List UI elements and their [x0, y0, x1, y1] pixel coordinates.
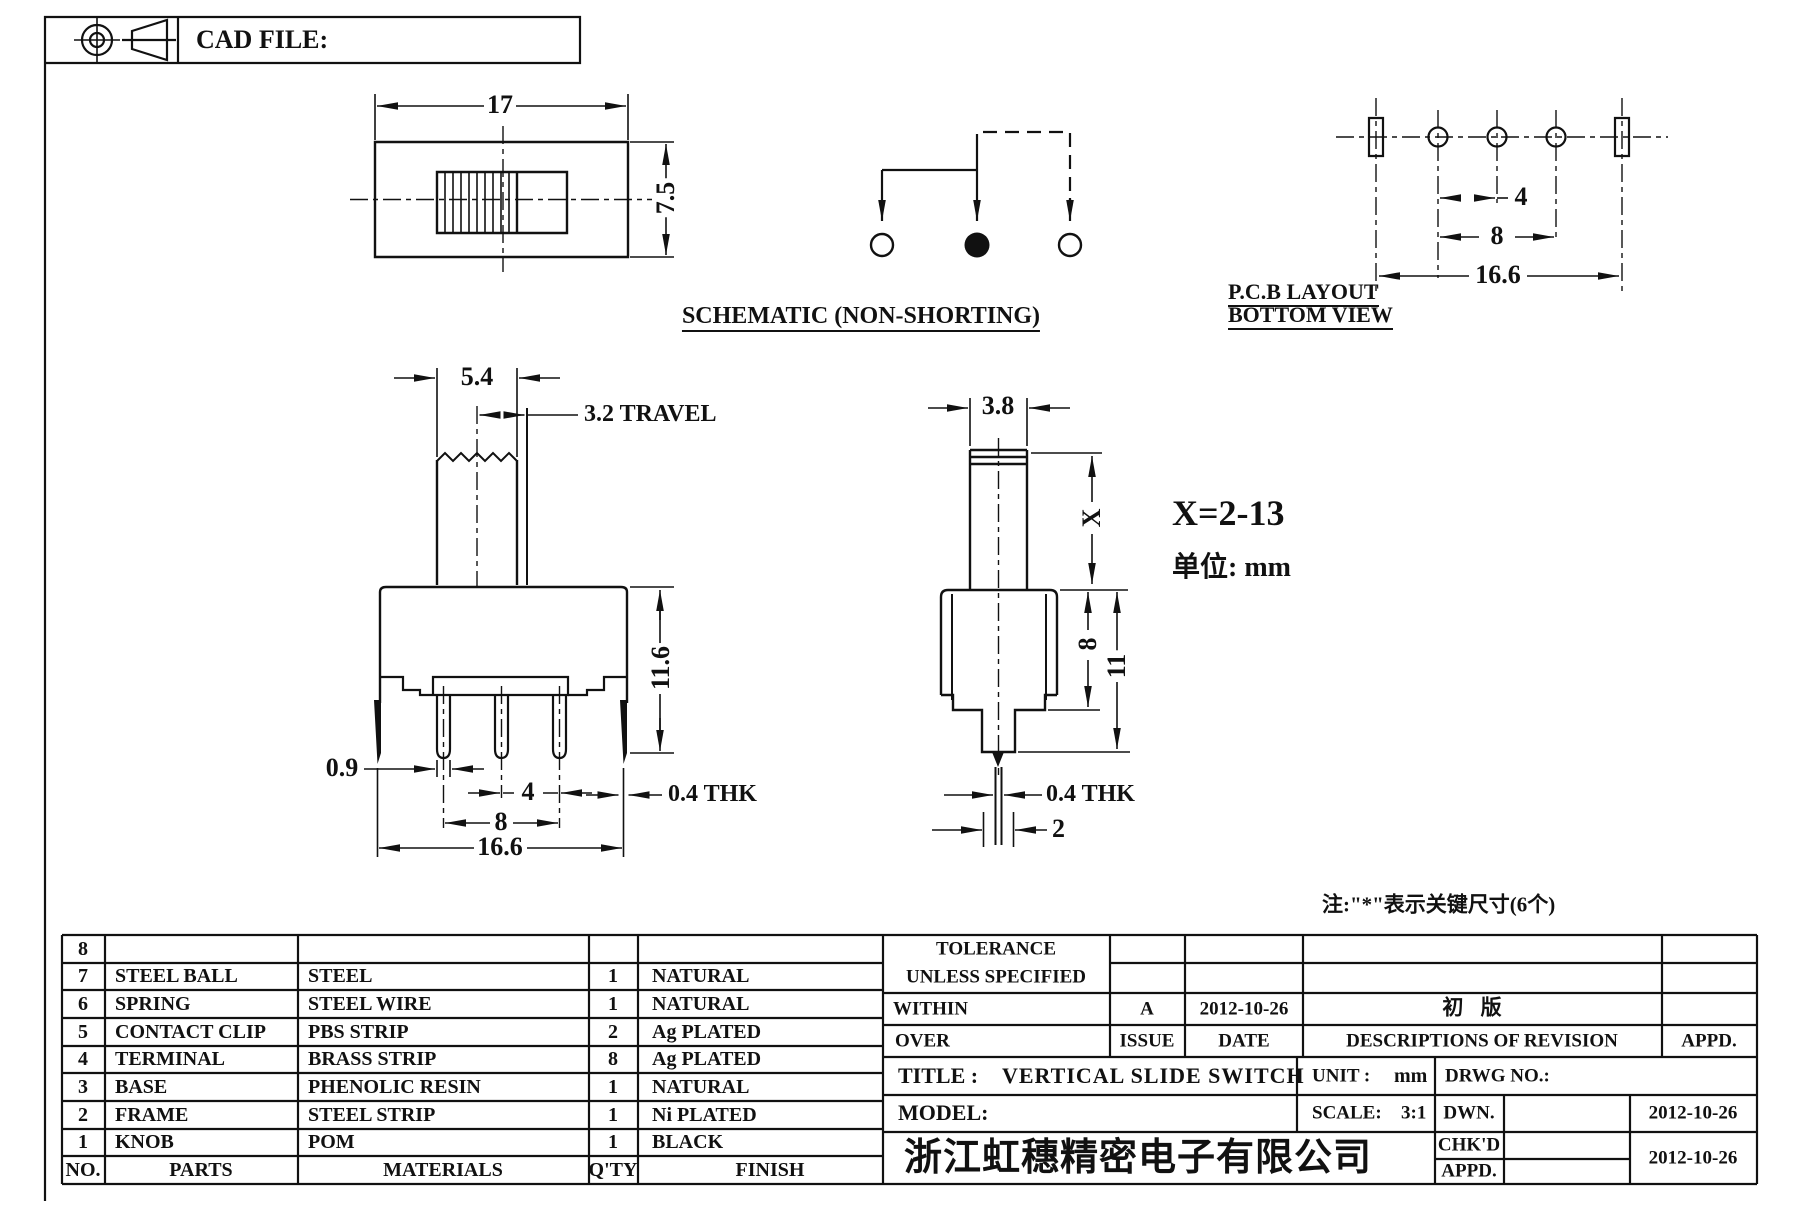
dim-pcb-pitch: 4: [1512, 184, 1531, 210]
tolerance-within-label: WITHIN: [893, 1000, 968, 1019]
schematic-label: SCHEMATIC (NON-SHORTING): [682, 304, 1040, 332]
note-x-range: X=2-13: [1172, 495, 1285, 531]
pcb-label-line2: BOTTOM VIEW: [1228, 304, 1393, 330]
part-finish: Ag PLATED: [652, 1049, 761, 1069]
tolerance-over-label: OVER: [895, 1032, 950, 1051]
part-finish: BLACK: [652, 1132, 723, 1152]
dim-front-height: 11.6: [648, 643, 674, 693]
date-column-label: DATE: [1218, 1032, 1269, 1051]
chkd-date: 2012-10-26: [1649, 1149, 1738, 1168]
issue-column-label: ISSUE: [1120, 1032, 1175, 1051]
part-no: 4: [78, 1049, 88, 1069]
note-unit: 单位: mm: [1172, 554, 1291, 582]
top-view: [350, 94, 674, 272]
part-qty: 1: [608, 1105, 618, 1125]
appd-label: APPD.: [1441, 1162, 1496, 1181]
part-finish: Ag PLATED: [652, 1022, 761, 1042]
appd-column-label: APPD.: [1681, 1032, 1736, 1051]
drawing-title: VERTICAL SLIDE SWITCH: [1002, 1065, 1305, 1087]
dim-pcb-total: 16.6: [1472, 262, 1524, 288]
dim-front-pin-width: 0.9: [326, 755, 359, 781]
drawing-canvas: [0, 0, 1811, 1207]
part-no: 2: [78, 1105, 88, 1125]
revision-date-value: 2012-10-26: [1200, 1000, 1289, 1019]
part-name: BASE: [115, 1077, 167, 1097]
dim-front-travel: 3.2 TRAVEL: [584, 402, 717, 426]
part-finish: NATURAL: [652, 1077, 749, 1097]
side-view: [928, 398, 1130, 847]
dim-top-width: 17: [484, 92, 516, 118]
chkd-label: CHK'D: [1438, 1136, 1500, 1155]
part-material: PHENOLIC RESIN: [308, 1077, 481, 1097]
col-header-finish: FINISH: [736, 1160, 805, 1180]
part-material: STEEL: [308, 966, 372, 986]
company-name: 浙江虹穗精密电子有限公司: [904, 1138, 1372, 1176]
part-name: TERMINAL: [115, 1049, 225, 1069]
tolerance-line2: UNLESS SPECIFIED: [906, 968, 1086, 987]
dim-pcb-span: 8: [1488, 223, 1507, 249]
tolerance-line1: TOLERANCE: [936, 940, 1056, 959]
part-material: POM: [308, 1132, 355, 1152]
part-qty: 2: [608, 1022, 618, 1042]
part-material: PBS STRIP: [308, 1022, 409, 1042]
dim-side-pin: 2: [1052, 816, 1065, 842]
dim-front-total: 16.6: [474, 834, 526, 860]
revision-description-value: 初 版: [1442, 998, 1507, 1019]
part-qty: 1: [608, 1132, 618, 1152]
col-header-qty: Q'TY: [589, 1160, 638, 1180]
drawing-sheet: CAD FILE: 17 7.5 SCHEMATIC (NON-SHORTING…: [0, 0, 1811, 1207]
part-finish: NATURAL: [652, 966, 749, 986]
revision-issue-value: A: [1140, 1000, 1154, 1019]
dim-side-total: 11: [1104, 651, 1130, 682]
scale-value: 3:1: [1401, 1104, 1426, 1123]
part-no: 5: [78, 1022, 88, 1042]
part-name: STEEL BALL: [115, 966, 238, 986]
part-no: 1: [78, 1132, 88, 1152]
part-no: 6: [78, 994, 88, 1014]
part-material: STEEL STRIP: [308, 1105, 435, 1125]
part-qty: 1: [608, 966, 618, 986]
dwn-date: 2012-10-26: [1649, 1104, 1738, 1123]
cad-file-label: CAD FILE:: [196, 27, 328, 53]
scale-label: SCALE:: [1312, 1104, 1382, 1123]
projection-symbol-icon: [74, 18, 176, 62]
schematic-view: [871, 132, 1081, 258]
part-qty: 1: [608, 1077, 618, 1097]
part-name: FRAME: [115, 1105, 188, 1125]
part-no: 3: [78, 1077, 88, 1097]
col-header-parts: PARTS: [169, 1160, 232, 1180]
part-no: 7: [78, 966, 88, 986]
dwn-label: DWN.: [1443, 1104, 1494, 1123]
dim-top-height: 7.5: [653, 179, 679, 218]
part-name: KNOB: [115, 1132, 174, 1152]
col-header-no: NO.: [66, 1160, 101, 1180]
col-header-materials: MATERIALS: [383, 1160, 503, 1180]
part-no: 8: [78, 939, 88, 959]
part-material: BRASS STRIP: [308, 1049, 436, 1069]
part-name: SPRING: [115, 994, 191, 1014]
title-label: TITLE :: [898, 1065, 978, 1087]
unit-label: UNIT :: [1312, 1067, 1370, 1086]
part-finish: Ni PLATED: [652, 1105, 757, 1125]
part-qty: 8: [608, 1049, 618, 1069]
dim-side-upper: 8: [1075, 635, 1101, 654]
part-material: STEEL WIRE: [308, 994, 432, 1014]
dim-side-x: X: [1079, 506, 1105, 531]
part-qty: 1: [608, 994, 618, 1014]
dim-front-pitch: 4: [519, 779, 538, 805]
dim-side-thickness: 0.4 THK: [1046, 782, 1135, 806]
dim-side-knob: 3.8: [982, 393, 1015, 419]
dim-front-knob: 5.4: [461, 364, 494, 390]
drwg-no-label: DRWG NO.:: [1445, 1067, 1550, 1086]
model-label: MODEL:: [898, 1102, 988, 1124]
part-name: CONTACT CLIP: [115, 1022, 266, 1042]
dim-front-thickness: 0.4 THK: [668, 782, 757, 806]
unit-value: mm: [1394, 1066, 1427, 1086]
part-finish: NATURAL: [652, 994, 749, 1014]
descriptions-column-label: DESCRIPTIONS OF REVISION: [1346, 1032, 1618, 1051]
note-key-dimensions: 注:"*"表示关键尺寸(6个): [1322, 895, 1555, 916]
